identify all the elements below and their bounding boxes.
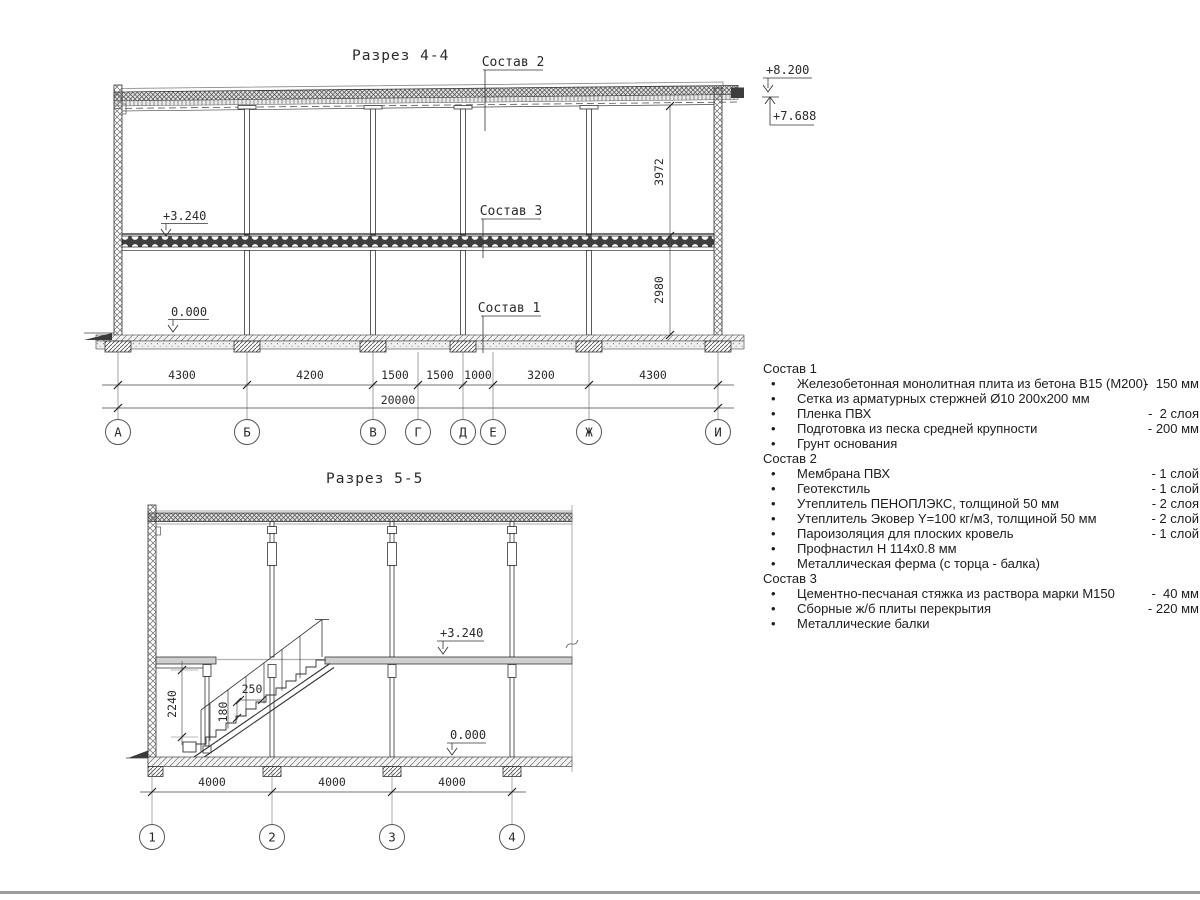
drawing-sheet: Разрез 4-4 — [0, 0, 1200, 900]
spec-item-text: Пленка ПВХ — [797, 406, 871, 421]
spec-item-text: Подготовка из песка средней крупности — [797, 421, 1037, 436]
sheet-bottom-border — [0, 891, 1200, 894]
spec-item-text: Профнастил Н 114x0.8 мм — [797, 541, 957, 556]
svg-text:Г: Г — [414, 425, 422, 440]
svg-text:3972: 3972 — [652, 158, 666, 186]
spec-item: Сборные ж/б плиты перекрытия- 220 мм — [763, 601, 1200, 616]
spec-item: Металлические балки — [763, 616, 1200, 631]
svg-text:Состав 2: Состав 2 — [482, 55, 545, 70]
spec-item-text: Утеплитель Эковер Y=100 кг/м3, толщиной … — [797, 511, 1097, 526]
spec-item: Грунт основания — [763, 436, 1200, 451]
svg-text:4200: 4200 — [296, 368, 324, 382]
spec-item-text: Цементно-песчаная стяжка из раствора мар… — [797, 586, 1115, 601]
section-4-4-roof — [114, 82, 744, 111]
svg-text:Состав 1: Состав 1 — [478, 301, 541, 316]
svg-text:+3.240: +3.240 — [163, 209, 206, 223]
stair-dimensions: 2240 250 180 — [165, 661, 266, 745]
ground-slab-55 — [126, 751, 572, 767]
spec-item: Подготовка из песка средней крупности- 2… — [763, 421, 1200, 436]
svg-text:2980: 2980 — [652, 276, 666, 304]
svg-text:Состав 3: Состав 3 — [480, 204, 543, 219]
spec-item-qty: - 200 мм — [1148, 421, 1199, 436]
svg-text:И: И — [714, 425, 722, 440]
wall-axis-1 — [148, 505, 156, 767]
spec-item-text: Мембрана ПВХ — [797, 466, 890, 481]
spec-item: Утеплитель ПЕНОПЛЭКС, толщиной 50 мм- 2 … — [763, 496, 1200, 511]
spec-item-text: Утеплитель ПЕНОПЛЭКС, толщиной 50 мм — [797, 496, 1059, 511]
section-5-5-roof — [148, 511, 572, 524]
elevation-roof-low: +7.688 — [762, 97, 816, 125]
section-5-5: Разрез 5-5 — [126, 471, 578, 850]
spec-item-qty: - 1 слой — [1151, 526, 1199, 541]
svg-text:0.000: 0.000 — [450, 728, 486, 742]
spec-item-qty: - 1 слой — [1151, 481, 1199, 496]
svg-text:2: 2 — [268, 830, 276, 845]
section-4-4: Разрез 4-4 — [84, 48, 816, 445]
spec-item-text: Грунт основания — [797, 436, 897, 451]
spec-item: Мембрана ПВХ- 1 слой — [763, 466, 1200, 481]
svg-text:Ж: Ж — [585, 425, 593, 440]
svg-text:0.000: 0.000 — [171, 305, 207, 319]
spec-item: Утеплитель Эковер Y=100 кг/м3, толщиной … — [763, 511, 1200, 526]
spec-item-qty: - 1 слой — [1151, 466, 1199, 481]
axis-bubbles-44: А Б В Г Д Е Ж И — [106, 420, 731, 445]
spec-item-qty: - 2 слой — [1151, 511, 1199, 526]
spec-item-qty: - 150 мм — [1144, 376, 1199, 391]
spec-item-qty: - 2 слоя — [1152, 496, 1199, 511]
svg-text:4000: 4000 — [198, 775, 226, 789]
elevation-ground-55: 0.000 — [447, 728, 486, 755]
columns-upper — [238, 106, 598, 236]
spec-item-text: Пароизоляция для плоских кровель — [797, 526, 1014, 541]
svg-text:1: 1 — [148, 830, 156, 845]
svg-text:+8.200: +8.200 — [766, 63, 809, 77]
svg-text:+3.240: +3.240 — [440, 626, 483, 640]
spec-item-text: Железобетонная монолитная плита из бетон… — [797, 376, 1147, 391]
section-4-4-title: Разрез 4-4 — [352, 48, 449, 64]
spec-item-text: Металлические балки — [797, 616, 929, 631]
spec-item-qty: - 220 мм — [1148, 601, 1199, 616]
svg-text:250: 250 — [242, 682, 263, 696]
spec-item-text: Геотекстиль — [797, 481, 870, 496]
spec-item: Железобетонная монолитная плита из бетон… — [763, 376, 1200, 391]
spec-item: Сетка из арматурных стержней Ø10 200x200… — [763, 391, 1200, 406]
wall-bracket-55 — [156, 527, 161, 535]
dimensions-44 — [102, 352, 734, 420]
svg-text:В: В — [369, 425, 377, 440]
svg-text:1500: 1500 — [426, 368, 454, 382]
wall-axis-i — [714, 88, 722, 348]
svg-text:4300: 4300 — [168, 368, 196, 382]
ground-slab — [84, 333, 744, 349]
svg-text:4000: 4000 — [318, 775, 346, 789]
spec-item: Профнастил Н 114x0.8 мм — [763, 541, 1200, 556]
spec-item-qty: - 2 слоя — [1148, 406, 1199, 421]
spec-heading: Состав 3 — [763, 571, 1200, 586]
axis-bubbles-55: 1 2 3 4 — [140, 825, 525, 850]
spec-item: Металлическая ферма (с торца - балка) — [763, 556, 1200, 571]
svg-text:А: А — [114, 425, 122, 440]
svg-text:1000: 1000 — [464, 368, 492, 382]
svg-text:1500: 1500 — [381, 368, 409, 382]
dimension-values-44: 4300 4200 1500 1500 1000 3200 4300 20000 — [168, 368, 667, 407]
svg-text:+7.688: +7.688 — [773, 109, 816, 123]
svg-text:Б: Б — [243, 425, 251, 440]
spec-item-text: Металлическая ферма (с торца - балка) — [797, 556, 1040, 571]
spec-item: Геотекстиль- 1 слой — [763, 481, 1200, 496]
svg-text:Е: Е — [489, 425, 497, 440]
elevation-floor-55: +3.240 — [437, 626, 484, 654]
spec-item-qty: - 40 мм — [1152, 586, 1200, 601]
spec-item-text: Сборные ж/б плиты перекрытия — [797, 601, 991, 616]
spec-item: Пленка ПВХ- 2 слоя — [763, 406, 1200, 421]
spec-item: Пароизоляция для плоских кровель- 1 слой — [763, 526, 1200, 541]
svg-text:3: 3 — [388, 830, 396, 845]
break-line — [566, 505, 578, 772]
spec-item-text: Сетка из арматурных стержней Ø10 200x200… — [797, 391, 1090, 406]
svg-text:4300: 4300 — [639, 368, 667, 382]
svg-text:4000: 4000 — [438, 775, 466, 789]
elevation-floor-44: +3.240 — [161, 209, 208, 236]
svg-text:2240: 2240 — [165, 690, 179, 718]
elevation-roof-top: +8.200 — [763, 63, 812, 92]
spec-heading: Состав 1 — [763, 361, 1200, 376]
svg-text:180: 180 — [216, 702, 230, 723]
svg-text:20000: 20000 — [381, 393, 416, 407]
roof-end-cap — [731, 88, 744, 99]
columns-lower — [245, 251, 592, 336]
callout-sostav-3: Состав 3 — [480, 204, 543, 258]
spec-heading: Состав 2 — [763, 451, 1200, 466]
svg-text:Д: Д — [459, 425, 467, 440]
dimensions-55: 4000 4000 4000 — [140, 770, 526, 825]
intermediate-floor — [122, 234, 714, 251]
vertical-dimensions-44: 3972 2980 — [652, 102, 674, 339]
elevation-ground-44: 0.000 — [168, 305, 209, 332]
svg-text:4: 4 — [508, 830, 516, 845]
svg-text:3200: 3200 — [527, 368, 555, 382]
spec-item: Цементно-песчаная стяжка из раствора мар… — [763, 586, 1200, 601]
section-5-5-title: Разрез 5-5 — [326, 471, 423, 487]
material-specifications: Состав 1 Железобетонная монолитная плита… — [763, 361, 1200, 631]
wall-axis-a — [114, 85, 122, 348]
